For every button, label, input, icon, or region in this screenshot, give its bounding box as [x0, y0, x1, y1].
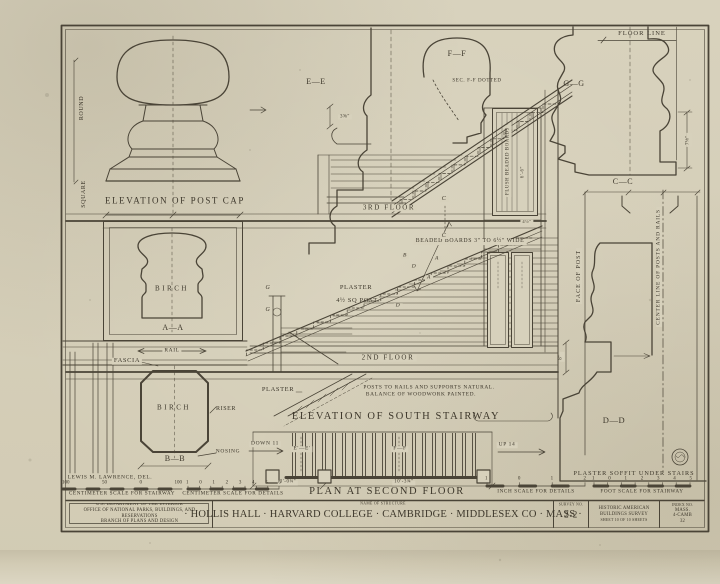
center-line-label: CENTER LINE OF POSTS AND RAILS	[656, 207, 662, 327]
square-label: SQUARE	[81, 180, 87, 208]
c-marker-1: C	[440, 196, 449, 202]
cm-details-caption: CENTIMETER SCALE FOR DETAILS	[182, 491, 283, 496]
index-caption: INDEX NO.	[672, 503, 693, 508]
g-marker-1: G	[264, 285, 273, 291]
dim-3-58: 3⅝"	[338, 115, 352, 120]
riser-label: RISER	[216, 406, 236, 412]
habs-cell: HISTORIC AMERICAN BUILDINGS SURVEY SHEET…	[590, 502, 658, 527]
posts-note-line1: POSTS TO RAILS AND SUPPORTS NATURAL.	[363, 385, 494, 390]
post-cap-elevation	[74, 36, 243, 218]
structure-name: · HOLLIS HALL · HARVARD COLLEGE · CAMBRI…	[184, 510, 582, 521]
posts-note-line2: BALANCE OF WOODWORK PAINTED.	[366, 392, 476, 397]
dim-4-12: 4½"	[520, 220, 533, 225]
beaded-boards-note: BEADED BOARDS 3" TO 6½" WIDE	[414, 239, 527, 245]
a-marker-2: A	[425, 275, 433, 281]
section-ff-label: F—F	[448, 50, 467, 58]
paper-edge-shadow	[0, 550, 720, 584]
inch-scale-numbers: 1012	[485, 477, 586, 482]
third-floor-landing	[66, 155, 546, 228]
section-gg-label: G—G	[563, 80, 584, 88]
sq-post-label: 4½ SQ POST	[336, 298, 378, 305]
down-11-label: DOWN 11	[249, 441, 281, 447]
section-bb-label: B—B	[165, 455, 185, 463]
floor-line-label: FLOOR LINE	[618, 31, 666, 38]
sec-ff-dotted-note: SEC. F-F DOTTED	[452, 79, 501, 84]
section-cc-label: C—C	[613, 178, 633, 186]
c-marker-2: C	[440, 233, 449, 239]
d-marker-1: D	[410, 264, 419, 270]
d-marker-2: D	[394, 303, 403, 309]
section-aa-drawing	[104, 222, 243, 367]
third-floor-label: 3RD FLOOR	[361, 205, 417, 212]
cm-details-numbers: 10123456	[186, 481, 281, 486]
dim-7-18: 7⅛"	[687, 133, 692, 147]
index-cell: INDEX NO. MASS. 4-CAMB 32	[661, 501, 704, 527]
nosing-label: NOSING	[216, 449, 240, 455]
second-floor-label: 2ND FLOOR	[360, 355, 417, 362]
fascia-label: FASCIA	[112, 358, 142, 365]
plan-ee-label: E'—E'	[291, 446, 312, 452]
survey-no-value: 2-2	[564, 511, 578, 520]
habs-line-3: SHEET 10 OF 10 SHEETS	[599, 518, 650, 523]
section-gg-profile	[550, 27, 692, 175]
flush-beaded-boards-label: FLUSH BEADED BOARDS	[507, 125, 512, 197]
dim-8: 8"	[560, 352, 565, 362]
birch-label-bb: BIRCH	[157, 405, 191, 412]
plan-ff-label: F—F	[391, 446, 408, 452]
a-marker-1: A	[433, 256, 441, 262]
birch-label-aa: BIRCH	[155, 286, 189, 293]
section-cc-and-centerlines	[583, 190, 700, 480]
up-14-label: UP 14	[497, 442, 518, 448]
plaster-label-mid: PLASTER	[340, 285, 372, 292]
dim-10-3: 10'-3¾"	[392, 481, 415, 486]
dim-6-6: 6'-6"	[522, 164, 527, 180]
habs-sheet: ROUND SQUARE ELEVATION OF POST CAP BIRCH…	[0, 0, 720, 584]
post-cap-title: ELEVATION OF POST CAP	[105, 197, 245, 206]
round-label: ROUND	[79, 96, 85, 120]
cm-stairway-numbers: 100500100	[62, 481, 182, 486]
plan-title: PLAN AT SECOND FLOOR	[309, 487, 465, 498]
section-dd-label: D—D	[603, 416, 626, 425]
survey-no-caption: SURVEY NO.	[559, 503, 584, 507]
index-line-3: 32	[672, 519, 693, 525]
foot-scale-numbers: 1012345	[592, 477, 692, 482]
b-marker: B	[401, 253, 409, 259]
cm-stairway-caption: CENTIMETER SCALE FOR STAIRWAY	[69, 491, 175, 496]
g-marker-2: G	[264, 307, 273, 313]
rail-label: RAIL	[162, 348, 181, 354]
name-of-structure-caption: NAME OF STRUCTURE	[360, 502, 406, 506]
foot-scale-caption: FOOT SCALE FOR STAIRWAY	[600, 489, 683, 494]
plaster-label-left: PLASTER	[260, 387, 296, 394]
landing-post-rails	[269, 296, 352, 372]
face-of-post-label: FACE OF POST	[576, 248, 582, 304]
section-ee-label: E—E	[306, 78, 326, 86]
flush-panel-and-doors	[484, 88, 558, 418]
inch-scale-caption: INCH SCALE FOR DETAILS	[497, 489, 575, 494]
section-aa-label: A—A	[162, 324, 183, 332]
south-stairway-title: ELEVATION OF SOUTH STAIRWAY	[292, 412, 500, 423]
